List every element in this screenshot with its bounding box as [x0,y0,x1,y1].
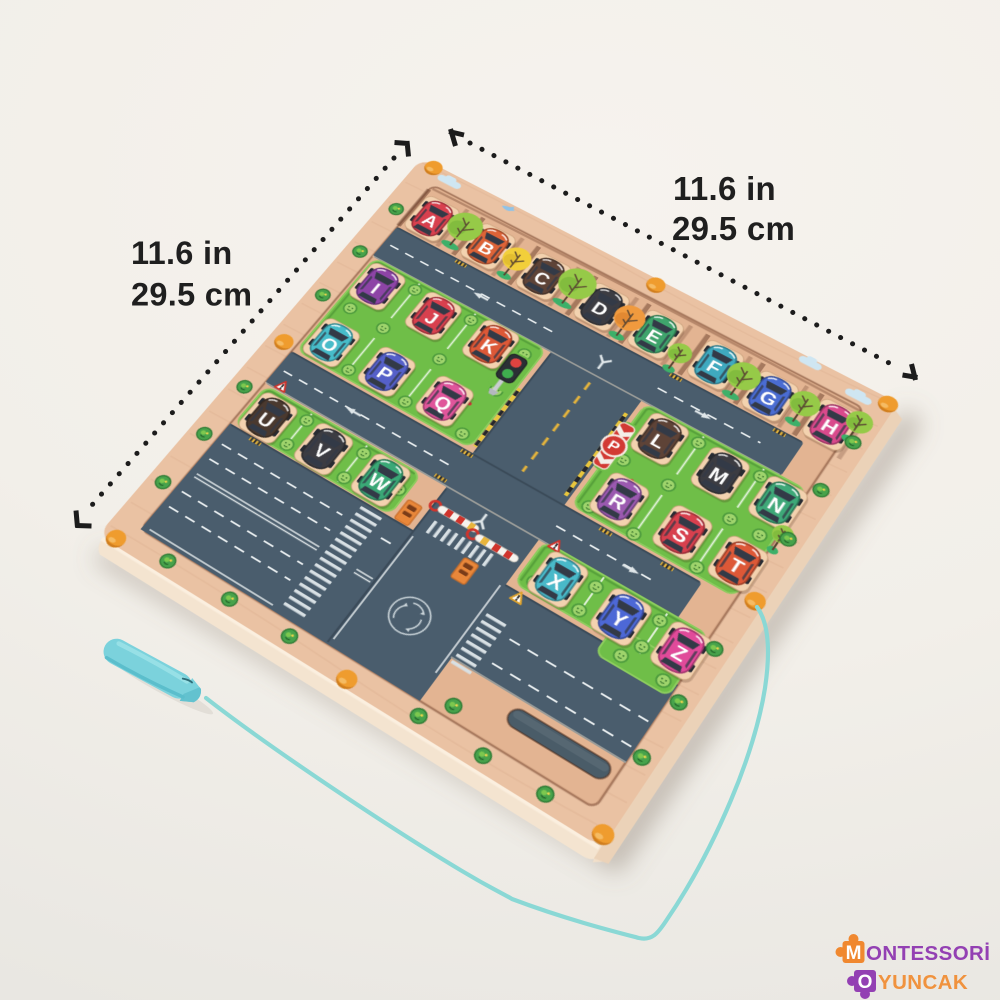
svg-text:O: O [858,972,873,993]
svg-text:11.6 in: 11.6 in [673,170,776,207]
svg-text:YUNCAK: YUNCAK [878,971,968,994]
svg-text:29.5 cm: 29.5 cm [131,277,252,313]
svg-text:M: M [846,943,862,964]
svg-text:11.6 in: 11.6 in [131,235,232,271]
svg-text:29.5 cm: 29.5 cm [672,210,795,247]
svg-text:ONTESSORİ: ONTESSORİ [866,942,990,965]
